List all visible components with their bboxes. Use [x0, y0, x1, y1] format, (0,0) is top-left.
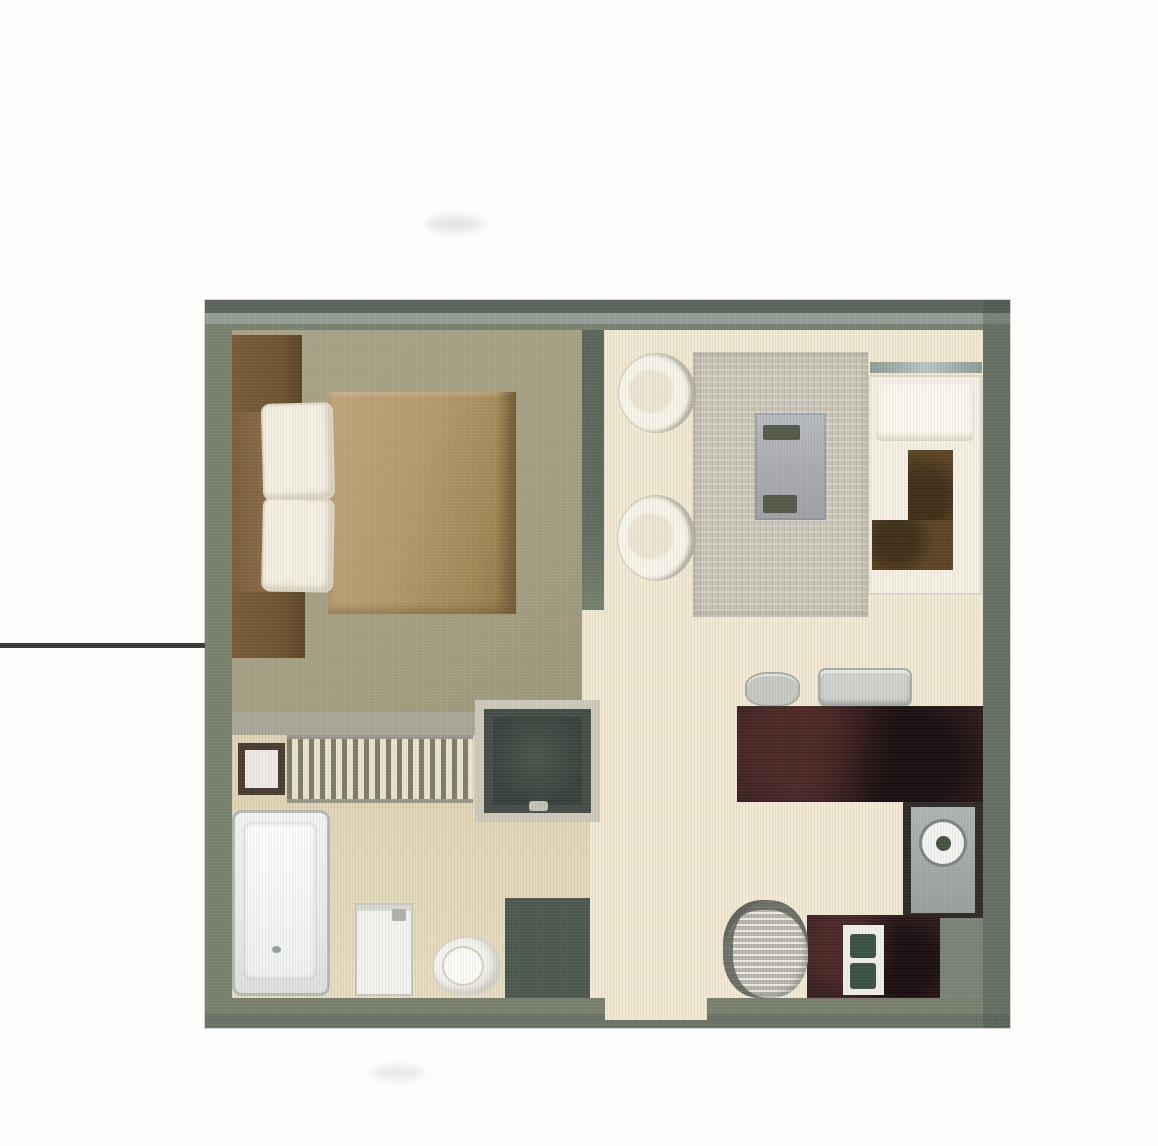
- outer-wall-top-edge: [205, 300, 1010, 313]
- washing-machine-door: [922, 822, 964, 864]
- scan-smudge: [372, 1066, 424, 1080]
- outer-wall-top-highlight: [205, 313, 1010, 324]
- towel-radiator: [287, 735, 473, 803]
- bathtub-basin: [243, 822, 317, 980]
- table-chair-top: [763, 425, 800, 440]
- toilet-seat: [442, 946, 484, 986]
- kitchen-counter-upper: [737, 706, 983, 802]
- round-chair-2: [618, 496, 695, 580]
- bathroom-door-wall-stub: [505, 898, 590, 998]
- corner-cushion-horizontal: [872, 520, 953, 570]
- washing-machine: [911, 807, 975, 913]
- bedroom-divider-wall: [582, 330, 604, 610]
- cookware-pan: [818, 668, 912, 707]
- bed-footboard-edge: [496, 392, 516, 614]
- wall-corner-block: [940, 918, 983, 998]
- bathroom-wall-fixture: [238, 743, 285, 795]
- stove-knob-2: [850, 963, 876, 989]
- shower-drain: [529, 801, 548, 811]
- stove: [843, 925, 884, 995]
- round-chair-1: [619, 354, 695, 432]
- washing-machine-drum: [936, 836, 951, 851]
- scan-smudge: [425, 216, 483, 232]
- table-chair-bottom: [763, 495, 797, 513]
- apartment-interior: [232, 330, 983, 998]
- bathtub: [232, 810, 330, 996]
- entry-opening: [605, 998, 707, 1020]
- cookware-pot: [745, 672, 800, 707]
- washing-machine-housing: [903, 802, 983, 918]
- wardrobe-top: [232, 335, 302, 412]
- sink-faucet: [392, 909, 406, 921]
- round-stool: [723, 900, 808, 998]
- double-bed-duvet: [328, 392, 516, 614]
- toilet: [432, 936, 502, 996]
- floor-plan: [205, 300, 1010, 1028]
- stove-knob-1: [850, 934, 876, 958]
- outer-wall-right: [983, 300, 1010, 1028]
- wardrobe-bottom: [232, 592, 305, 658]
- bed-pillow-2: [261, 497, 335, 592]
- daybed-pillow: [876, 384, 974, 441]
- wall-shelf: [870, 362, 982, 373]
- callout-leader-line: [0, 643, 207, 648]
- shower-tray: [493, 717, 583, 804]
- bathroom-sink: [355, 903, 413, 996]
- bed-pillow-1: [261, 402, 336, 501]
- shower: [475, 700, 600, 822]
